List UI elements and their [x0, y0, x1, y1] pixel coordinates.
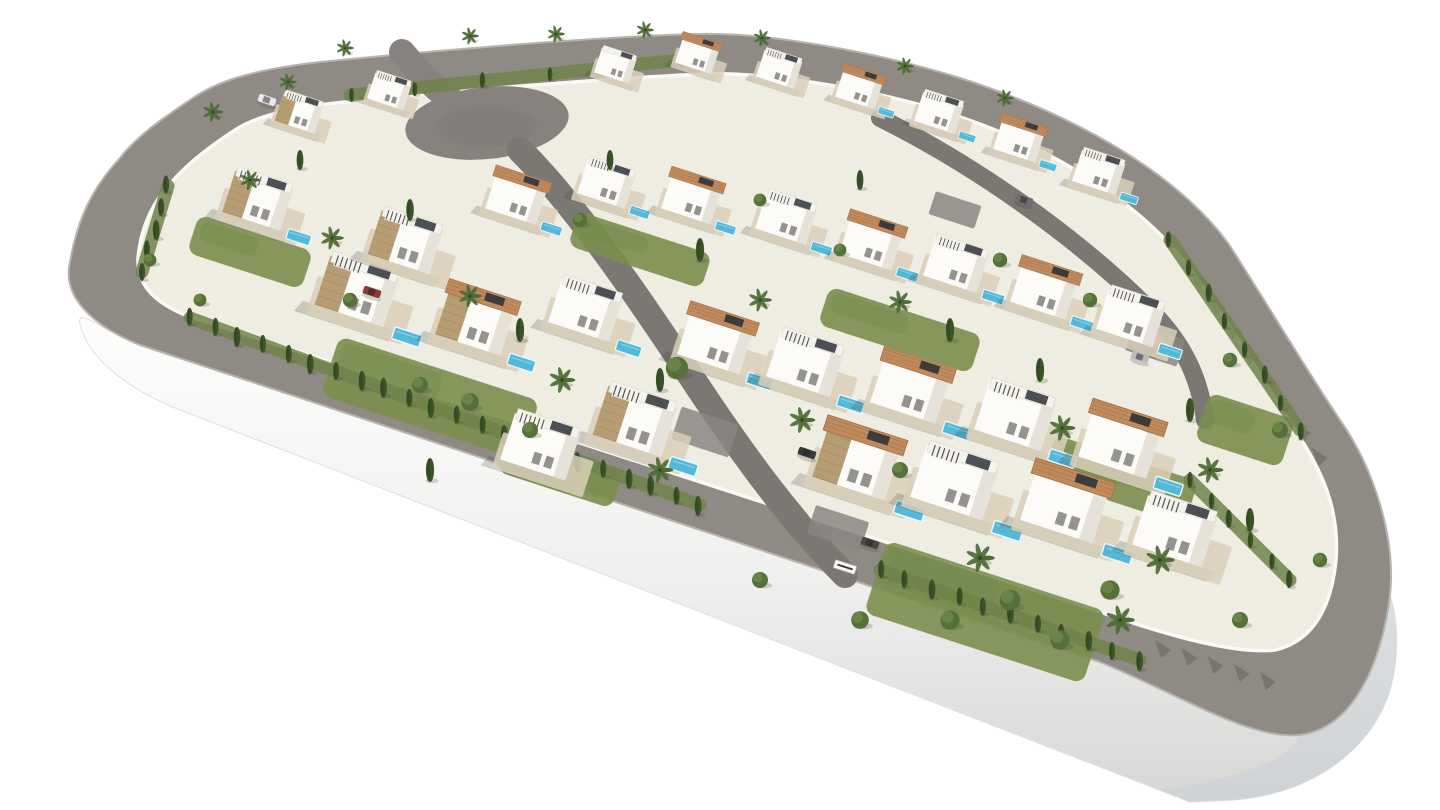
render-figure: [0, 0, 1440, 810]
development-render: [0, 0, 1440, 810]
